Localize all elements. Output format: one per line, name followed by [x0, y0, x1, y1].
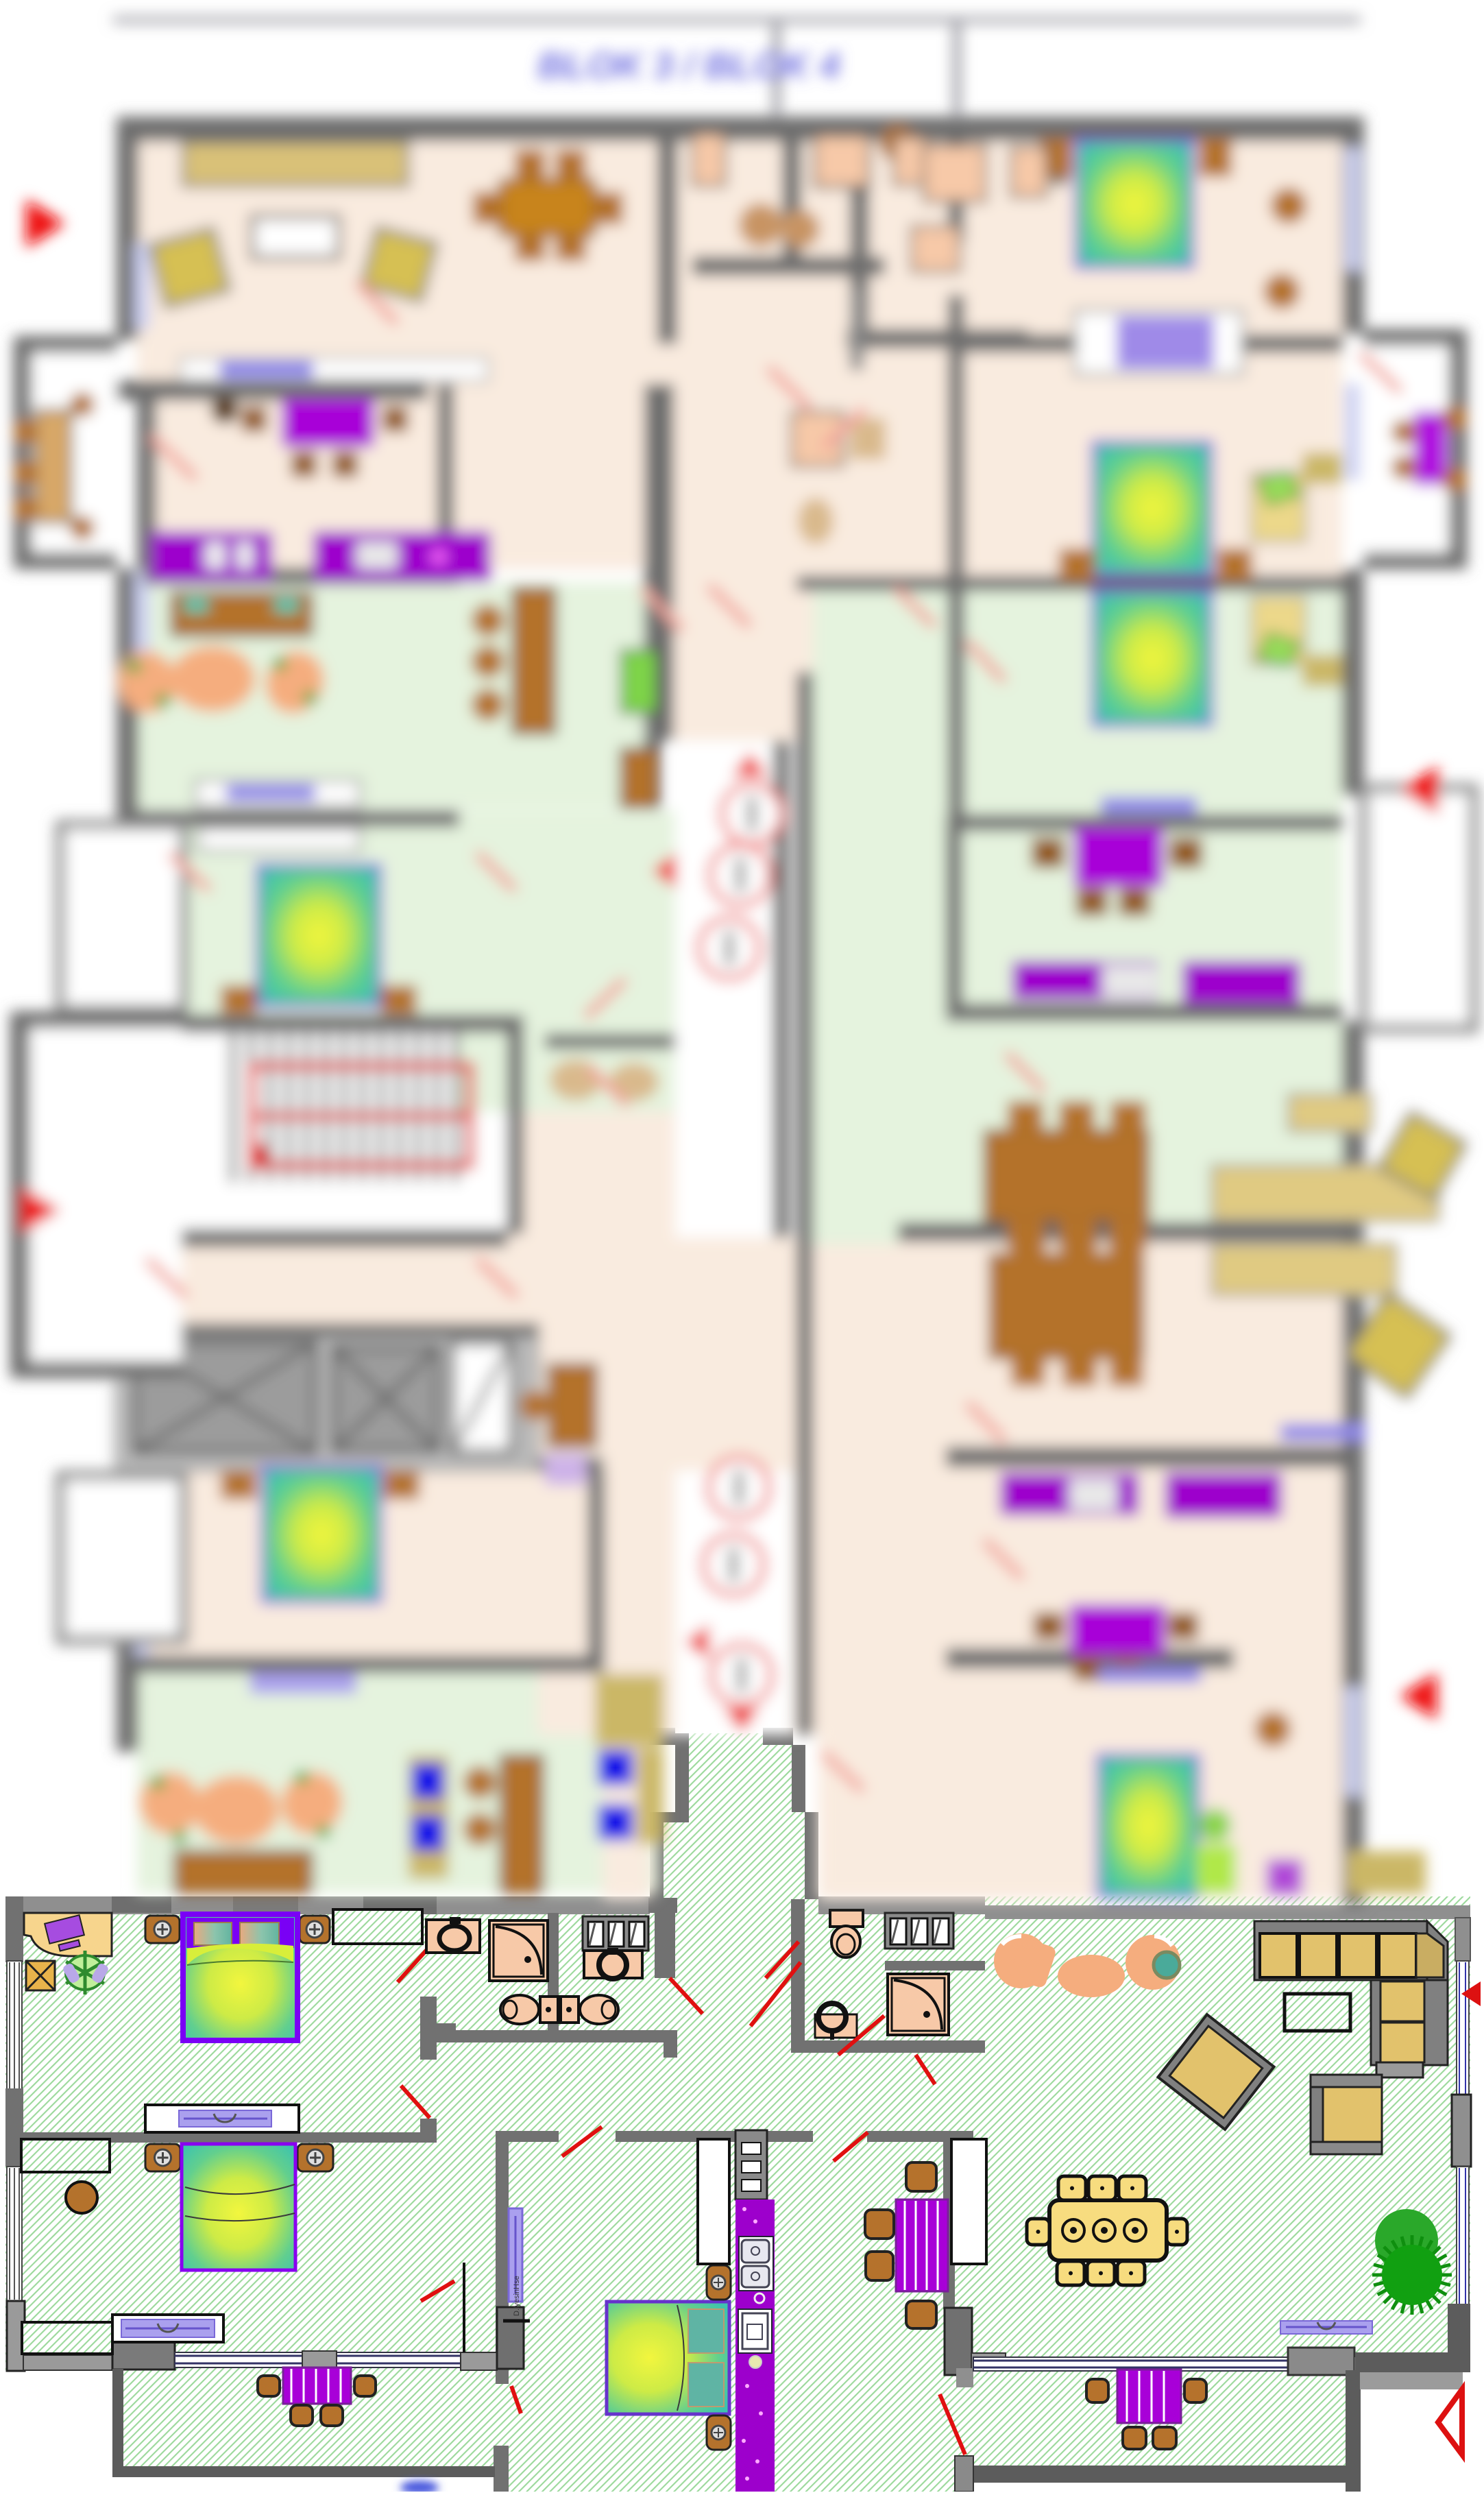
svg-text:D.lyesinHse: D.lyesinHse: [513, 2276, 521, 2316]
svg-text:BLOK 3 / BLOK 4: BLOK 3 / BLOK 4: [537, 45, 840, 86]
